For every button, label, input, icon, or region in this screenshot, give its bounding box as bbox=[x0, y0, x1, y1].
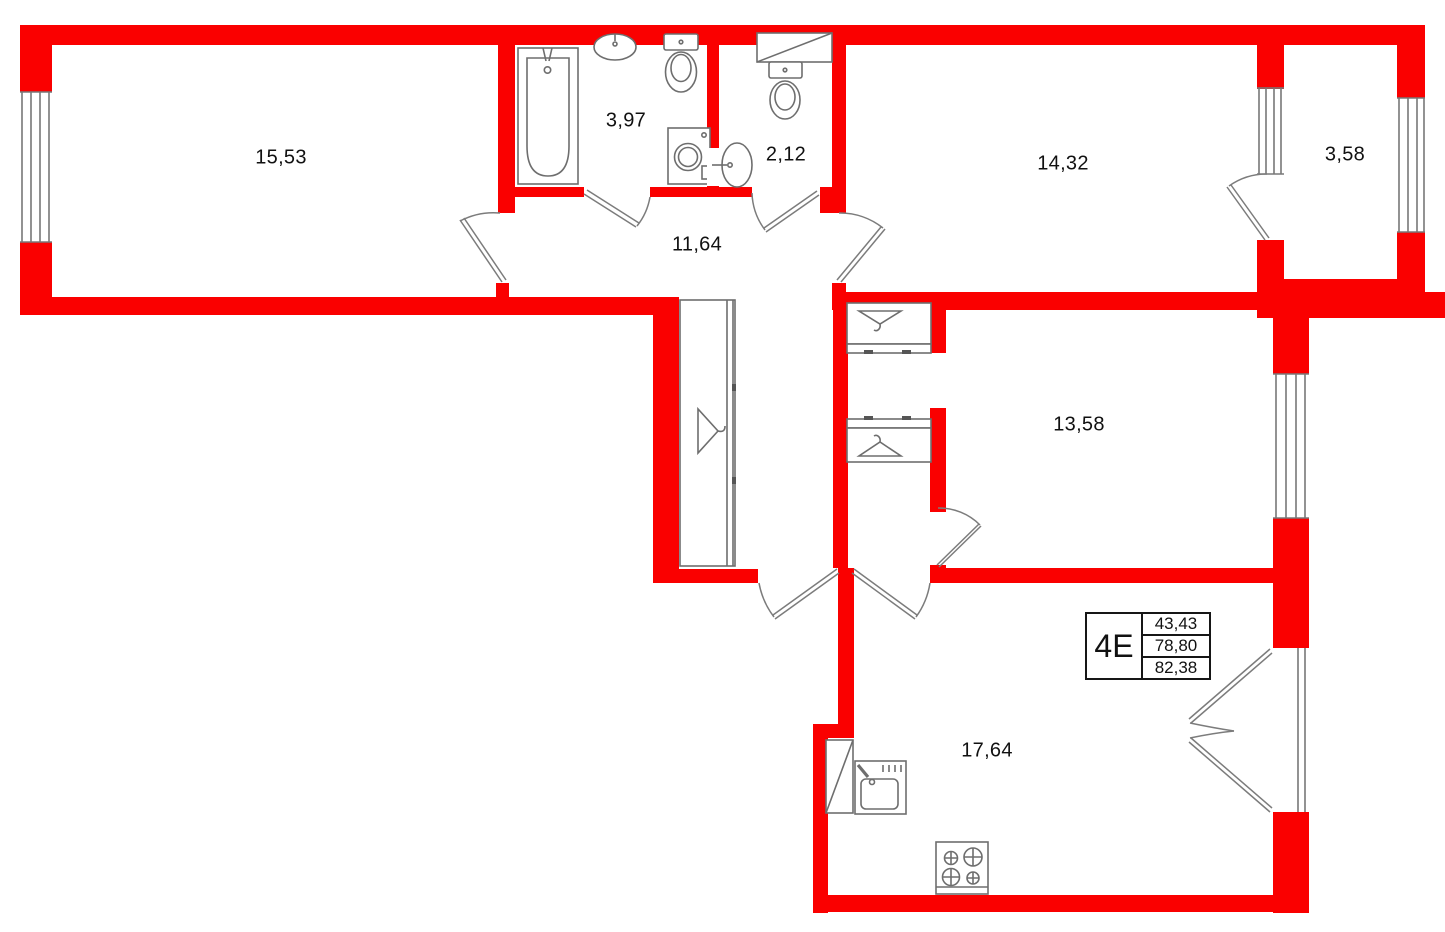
closet-icon bbox=[847, 303, 931, 354]
wall-segment bbox=[1273, 303, 1309, 374]
balcony-door-glazing-icon bbox=[1298, 648, 1305, 812]
wall-segment bbox=[1397, 45, 1425, 98]
unit-area-values: 43,43 78,80 82,38 bbox=[1143, 614, 1209, 678]
wall-segment bbox=[653, 297, 679, 583]
unit-area-value: 43,43 bbox=[1143, 614, 1209, 636]
window-icon bbox=[20, 92, 52, 242]
wall-segment bbox=[833, 292, 848, 568]
window-icon bbox=[1397, 98, 1425, 232]
wall-segment bbox=[1273, 518, 1309, 648]
room-area-label: 13,58 bbox=[1053, 414, 1105, 437]
wall-segment bbox=[832, 45, 846, 187]
wall-segment bbox=[930, 292, 946, 353]
door-swing-icon bbox=[752, 191, 819, 232]
wall-segment bbox=[650, 187, 712, 197]
room-area-label: 3,58 bbox=[1325, 144, 1365, 167]
wall-segment bbox=[1273, 812, 1309, 913]
fixtures bbox=[518, 33, 988, 894]
corridor-wardrobe-icon bbox=[680, 300, 736, 566]
wall-segment bbox=[20, 45, 52, 92]
unit-area-value: 78,80 bbox=[1143, 636, 1209, 658]
wall-segment bbox=[1283, 279, 1397, 300]
room-area-label: 11,64 bbox=[672, 234, 722, 257]
wc-shelf-icon bbox=[757, 33, 832, 62]
closet-icon bbox=[847, 416, 931, 462]
unit-area-value: 82,38 bbox=[1143, 658, 1209, 678]
kitchen-sink-icon bbox=[855, 761, 906, 814]
wc-toilet-icon bbox=[769, 62, 802, 119]
floor-plan-drawing bbox=[0, 0, 1445, 932]
door-swing-icon bbox=[937, 508, 981, 567]
floor-plan: 15,53 3,97 2,12 14,32 3,58 11,64 13,58 1… bbox=[0, 0, 1445, 932]
wall-segment bbox=[813, 895, 1309, 912]
room-area-label: 17,64 bbox=[961, 740, 1013, 763]
wall-segment bbox=[1257, 45, 1284, 89]
wall-segment bbox=[496, 283, 509, 299]
wall-segment bbox=[653, 569, 758, 583]
stove-icon bbox=[936, 842, 988, 894]
door-swing-icon bbox=[1189, 731, 1272, 812]
room-area-label: 3,97 bbox=[606, 110, 646, 133]
door-swing-icon bbox=[1227, 174, 1269, 240]
unit-info-box: 4E 43,43 78,80 82,38 bbox=[1085, 612, 1211, 680]
wall-segment bbox=[930, 568, 1273, 583]
bathtub-icon bbox=[518, 48, 578, 184]
window-icon bbox=[1257, 88, 1284, 174]
room-area-label: 14,32 bbox=[1037, 153, 1089, 176]
doors bbox=[460, 174, 1272, 812]
wc-sink-icon bbox=[707, 143, 752, 187]
washing-machine-icon bbox=[668, 128, 710, 184]
wall-segment bbox=[20, 25, 1425, 45]
unit-number: 4E bbox=[1087, 614, 1143, 678]
door-swing-icon bbox=[837, 213, 885, 282]
wall-segment bbox=[930, 408, 946, 512]
door-swing-icon bbox=[460, 213, 506, 282]
wall-segment bbox=[1397, 232, 1425, 300]
door-swing-icon bbox=[759, 569, 839, 619]
door-swing-icon bbox=[852, 569, 930, 619]
room-area-label: 15,53 bbox=[255, 147, 307, 170]
wall-segment bbox=[712, 187, 752, 197]
wall-segment bbox=[838, 568, 854, 738]
room-area-label: 2,12 bbox=[766, 144, 806, 167]
wall-segment bbox=[498, 187, 584, 197]
wall-segment bbox=[20, 297, 678, 315]
door-swing-icon bbox=[584, 190, 650, 227]
bathroom-toilet-icon bbox=[664, 34, 698, 92]
wall-segment bbox=[820, 187, 846, 213]
bathroom-sink-icon bbox=[594, 34, 636, 60]
kitchen-tall-cabinet-icon bbox=[826, 740, 853, 813]
wall-segment bbox=[20, 242, 52, 300]
window-icon bbox=[1273, 374, 1309, 518]
wall-segment bbox=[1257, 240, 1284, 294]
